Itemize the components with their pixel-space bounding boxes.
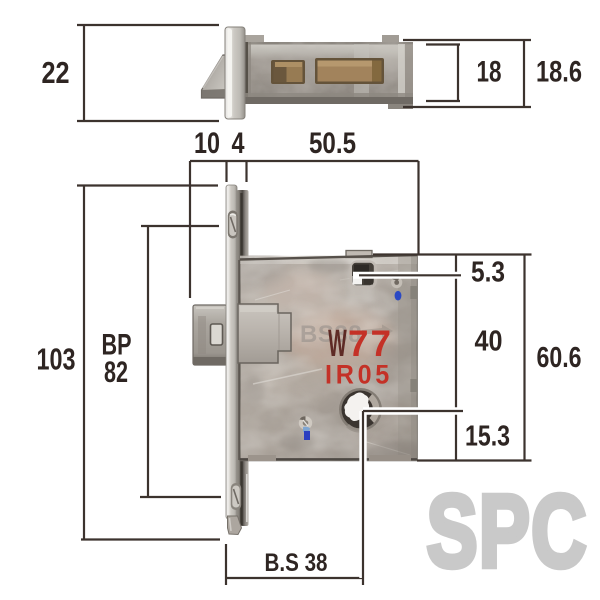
svg-text:40: 40 xyxy=(475,326,503,358)
svg-text:B.S 38: B.S 38 xyxy=(265,549,328,577)
svg-text:77: 77 xyxy=(348,323,393,364)
svg-text:5.3: 5.3 xyxy=(471,257,505,289)
svg-text:103: 103 xyxy=(37,342,76,377)
svg-text:82: 82 xyxy=(104,356,128,389)
svg-text:IR05: IR05 xyxy=(325,360,393,390)
svg-text:SPC: SPC xyxy=(427,475,588,590)
svg-text:10: 10 xyxy=(194,127,220,160)
svg-text:15.3: 15.3 xyxy=(465,421,510,453)
svg-text:22: 22 xyxy=(42,55,70,90)
svg-text:18.6: 18.6 xyxy=(536,56,582,89)
svg-text:18: 18 xyxy=(477,56,502,89)
svg-text:4: 4 xyxy=(232,127,245,160)
svg-text:60.6: 60.6 xyxy=(537,342,582,374)
svg-text:50.5: 50.5 xyxy=(309,127,356,160)
